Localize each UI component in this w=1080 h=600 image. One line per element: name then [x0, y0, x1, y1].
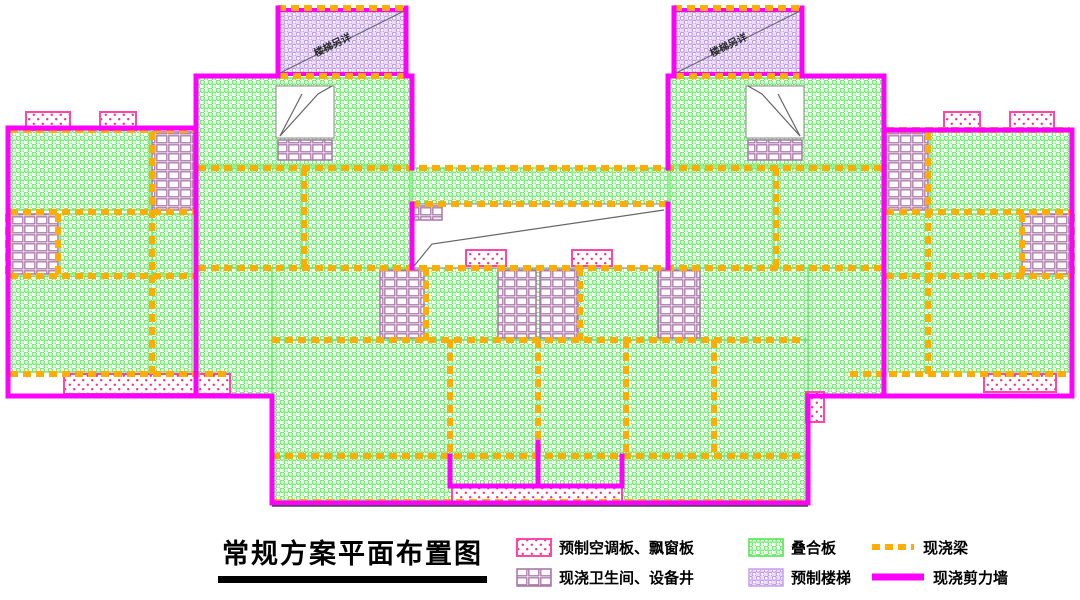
region-grid [748, 140, 802, 160]
drawing-sheet: 楼梯另详楼梯另详 常规方案平面布置图 预制空调板、飘窗板 叠合板 [0, 0, 1080, 600]
legend-label: 现浇梁 [923, 537, 968, 558]
region-grid [886, 132, 928, 210]
region-green [888, 214, 1020, 274]
page-title: 常规方案平面布置图 [218, 532, 487, 583]
orange-dash-swatch-icon [870, 541, 916, 553]
region-green [888, 276, 1070, 372]
lavender-dots-swatch-icon [748, 568, 784, 587]
region-green [10, 276, 192, 372]
region-green [930, 130, 1070, 210]
legend-item-composite-slab: 叠合板 [748, 537, 870, 558]
legend-label: 叠合板 [791, 537, 836, 558]
legend-label: 现浇剪力墙 [933, 567, 1008, 588]
region-pink [572, 250, 612, 266]
region-grid [278, 140, 332, 160]
legend-row-1: 预制空调板、飘窗板 叠合板 现浇梁 [516, 534, 1040, 560]
region-pink [944, 112, 980, 130]
legend-item-cast-shear-wall: 现浇剪力墙 [870, 567, 1040, 588]
region-green [152, 214, 192, 274]
slab-regions [10, 10, 1070, 503]
legend-label: 现浇卫生间、设备井 [559, 567, 694, 588]
region-grid [540, 270, 578, 338]
legend: 预制空调板、飘窗板 叠合板 现浇梁 [516, 534, 1040, 594]
pink-dots-swatch-icon [516, 538, 552, 557]
region-grid [498, 270, 536, 338]
region-green [670, 168, 774, 268]
purple-grid-swatch-icon [516, 568, 552, 587]
region-void [412, 204, 668, 268]
region-green [10, 130, 150, 210]
title-and-legend-bar: 常规方案平面布置图 预制空调板、飘窗板 叠合板 [0, 520, 1080, 600]
region-green [306, 168, 410, 268]
legend-item-precast-ac-bay-panel: 预制空调板、飘窗板 [516, 537, 748, 558]
region-green [778, 168, 882, 268]
region-green [412, 168, 668, 204]
region-grid [380, 270, 424, 338]
region-grid [10, 214, 58, 274]
legend-item-precast-stair: 预制楼梯 [748, 567, 870, 588]
region-pink [466, 250, 506, 266]
legend-label: 预制楼梯 [791, 567, 851, 588]
region-green [198, 168, 302, 268]
floor-plan: 楼梯另详楼梯另详 [0, 0, 1080, 520]
magenta-line-swatch-icon [870, 571, 926, 583]
legend-label: 预制空调板、飘窗板 [559, 537, 694, 558]
legend-row-2: 现浇卫生间、设备井 预制楼梯 现浇剪力墙 [516, 564, 1040, 590]
region-grid [658, 270, 700, 338]
legend-item-cast-bathroom-shaft: 现浇卫生间、设备井 [516, 567, 748, 588]
region-grid [1022, 214, 1070, 274]
legend-item-cast-insitu-beam: 现浇梁 [870, 537, 1040, 558]
region-grid [414, 206, 442, 220]
region-grid [152, 132, 194, 210]
green-hex-swatch-icon [748, 538, 784, 557]
